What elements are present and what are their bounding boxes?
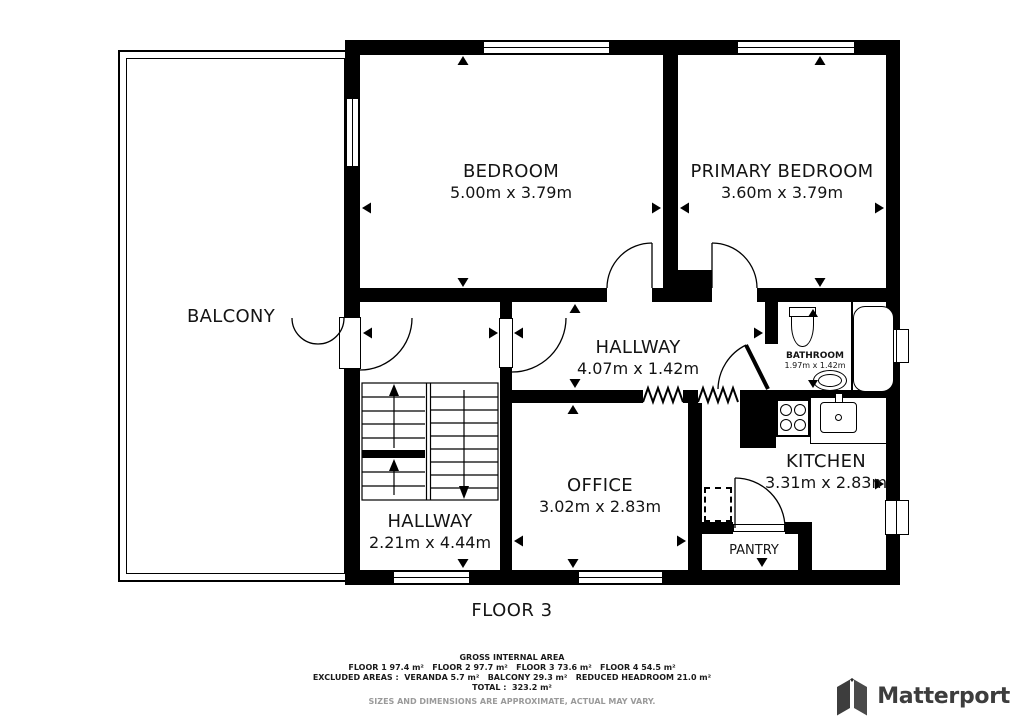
burner-icon [794,404,806,416]
room-name: HALLWAY [528,337,748,359]
room-dimensions: 4.07m x 1.42m [528,359,748,379]
window-pane-line [896,501,897,534]
window [578,571,663,584]
primary-bedroom-door-arc [712,243,757,288]
room-dimensions: 2.21m x 4.44m [330,533,530,553]
room-label-kitchen: KITCHEN 3.31m x 2.83m [716,451,936,493]
wall [667,270,712,302]
footer-title: GROSS INTERNAL AREA [0,653,1024,663]
balcony-door-arc [360,318,412,370]
faucet-icon [835,393,843,403]
room-label-hallway-upper: HALLWAY 4.07m x 1.42m [528,337,748,379]
room-dimensions: 5.00m x 3.79m [381,183,641,203]
stove-icon [776,399,810,437]
hallway-door-leaf [499,318,513,368]
room-label-pantry: PANTRY [704,543,804,559]
stair-direction-arrows [389,384,469,499]
room-label-balcony: BALCONY [131,306,331,328]
footer-floor-areas: FLOOR 1 97.4 m² FLOOR 2 97.7 m² FLOOR 3 … [0,663,1024,673]
room-dimensions: 1.97m x 1.42m [777,361,853,370]
stairs-icon [362,383,498,500]
reduced-headroom-opening [643,390,683,403]
room-name: KITCHEN [716,451,936,473]
burner-icon [794,419,806,431]
window-pane-line [394,577,469,578]
room-label-hallway-lower: HALLWAY 2.21m x 4.44m [330,511,530,553]
window [885,500,909,535]
floor-title: FLOOR 3 [0,600,1024,621]
bedroom-door-arc [607,243,652,288]
balcony-door-leaf [339,317,361,369]
room-name: PRIMARY BEDROOM [652,161,912,183]
wall [740,390,776,448]
wall [512,390,643,403]
door-opening [712,288,757,302]
window-pane-line [579,577,662,578]
bathroom-sink-icon [818,374,842,387]
room-name: BEDROOM [381,161,641,183]
burner-icon [780,419,792,431]
reduced-headroom-opening [698,390,740,403]
room-name: PANTRY [704,543,804,559]
room-name: OFFICE [490,475,710,497]
room-name: BATHROOM [777,351,853,361]
toilet-icon [791,316,814,347]
matterport-logo-icon [834,676,870,716]
bathtub-icon [853,306,894,392]
wall-stair-landing [362,450,425,458]
floorplan-page: BALCONY BEDROOM 5.00m x 3.79m PRIMARY BE… [0,0,1024,724]
window [393,571,470,584]
room-name: HALLWAY [330,511,530,533]
window [737,41,855,54]
window [346,98,359,167]
window-pane-line [484,47,609,48]
window-pane-line [896,330,897,362]
window-pane-line [738,47,854,48]
room-label-bedroom: BEDROOM 5.00m x 3.79m [381,161,641,203]
window-pane-line [352,99,353,166]
bathroom-door-leaf [746,345,768,389]
room-name: BALCONY [131,306,331,328]
room-dimensions: 3.31m x 2.83m [716,473,936,493]
burner-icon [780,404,792,416]
room-label-primary-bedroom: PRIMARY BEDROOM 3.60m x 3.79m [652,161,912,203]
wall [765,302,778,344]
room-label-bathroom: BATHROOM 1.97m x 1.42m [777,351,853,370]
door-opening [607,288,652,302]
matterport-logo-text: Matterport [877,684,1010,709]
matterport-logo: Matterport [834,676,1010,716]
room-dimensions: 3.60m x 3.79m [652,183,912,203]
drain-icon [835,414,842,421]
pantry-door-panel [733,524,785,532]
window [483,41,610,54]
